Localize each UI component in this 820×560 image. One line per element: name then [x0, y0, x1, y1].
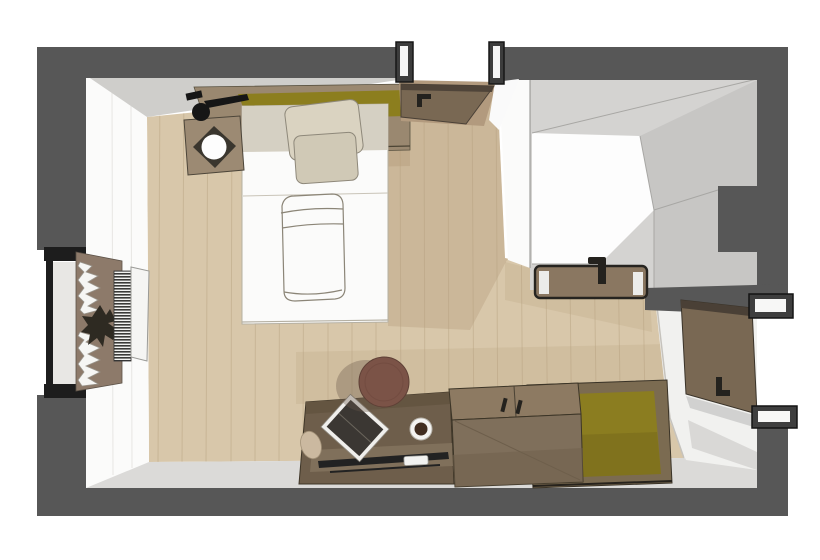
lamp-head [192, 103, 210, 121]
window-sill [53, 262, 77, 385]
entry-post-top-inner [755, 299, 786, 312]
vanity-counter [535, 266, 647, 298]
vanity-end-cap-right [633, 272, 643, 295]
wall-right-upper [757, 80, 788, 316]
entry-post-bottom-inner [758, 411, 790, 422]
floor-plan-svg [0, 0, 820, 560]
floor-plan-stage [0, 0, 820, 560]
bowl [202, 135, 227, 160]
coffee-cup [415, 423, 428, 436]
wall-top-right [503, 47, 788, 84]
bathroom [530, 78, 788, 290]
vanity-end-cap-left [539, 271, 549, 294]
door-post-right-inner [493, 46, 500, 78]
faucet-stem [598, 262, 606, 284]
stool-seat [359, 357, 409, 407]
pillow-front [293, 132, 358, 184]
window-frame-rail [46, 250, 53, 396]
faucet-spout [588, 257, 606, 264]
window-sash [131, 267, 149, 361]
double-bed [242, 99, 388, 324]
door-post-left-inner [400, 46, 408, 76]
radiator [114, 271, 131, 361]
remote [404, 455, 428, 465]
cabinet [449, 383, 583, 487]
